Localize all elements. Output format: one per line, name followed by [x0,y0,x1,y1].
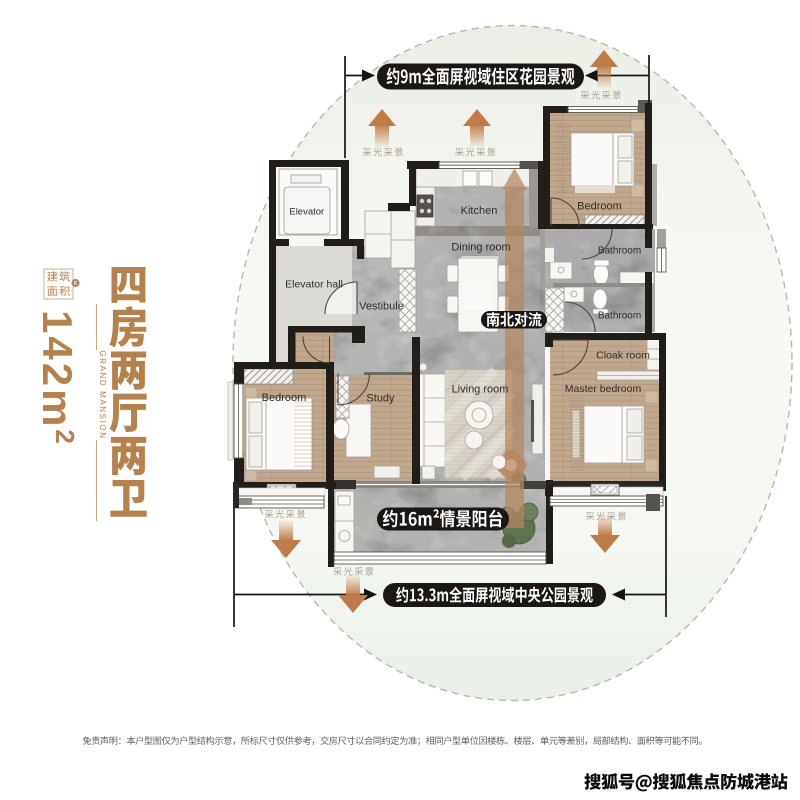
svg-text:Bedroom: Bedroom [262,392,307,404]
svg-text:Kitchen: Kitchen [461,205,498,217]
svg-text:142m2: 142m2 [34,310,81,447]
svg-text:Elevator hall: Elevator hall [285,279,343,291]
svg-text:R: R [74,281,78,287]
svg-text:Master bedroom: Master bedroom [565,383,642,395]
svg-text:Bedroom: Bedroom [577,201,622,213]
svg-text:Elevator: Elevator [289,207,324,218]
svg-text:Cloak room: Cloak room [596,350,650,362]
svg-text:GRAND MANSION: GRAND MANSION [98,350,107,439]
svg-text:Bathroom: Bathroom [598,246,641,257]
svg-text:Living room: Living room [452,384,509,396]
svg-text:Vestibule: Vestibule [359,301,404,313]
svg-text:Dining room: Dining room [451,242,510,254]
svg-text:Bathroom: Bathroom [598,311,641,322]
svg-text:Study: Study [366,393,395,405]
